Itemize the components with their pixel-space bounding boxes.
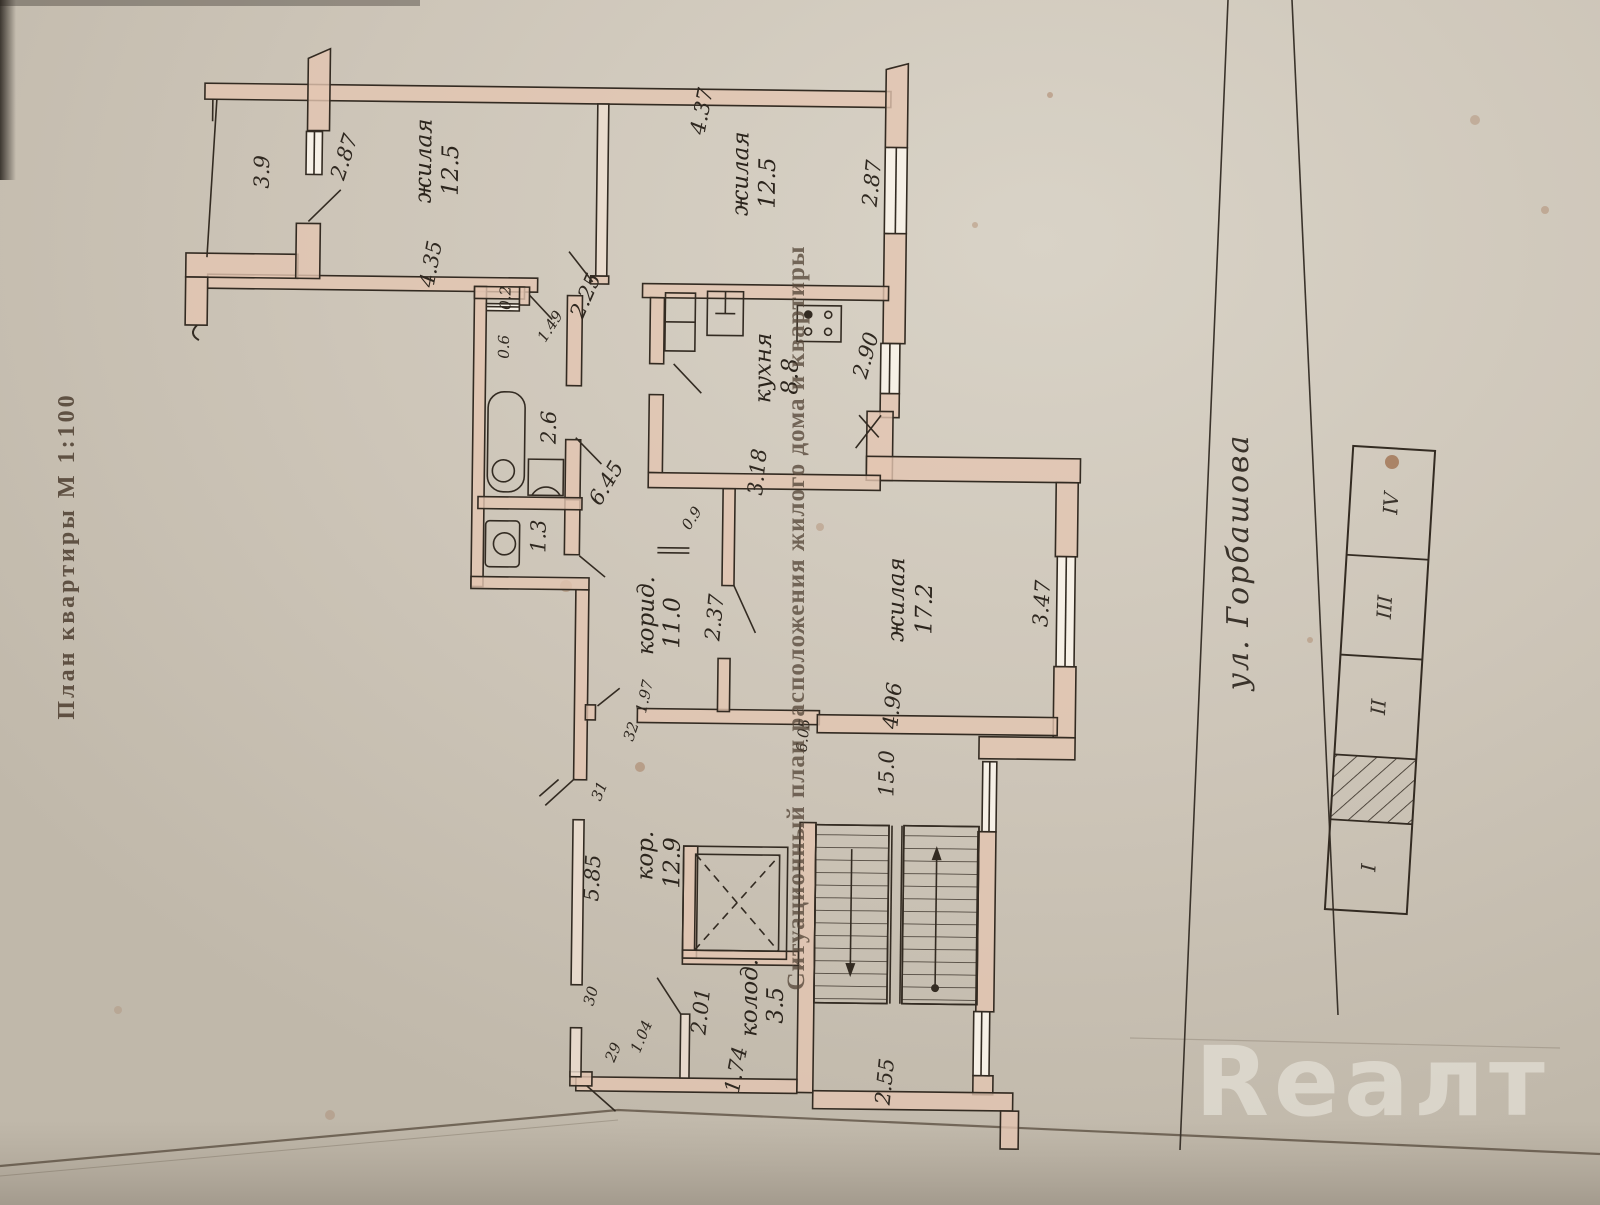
bath-area-label: 2.6: [537, 411, 561, 446]
floor-plan-canvas: ул. Горбашова IV III II I: [0, 0, 1600, 1205]
room2-name-label: жилая: [727, 131, 754, 216]
living-area-label: 17.2: [911, 583, 938, 635]
kitchen-name-label: кухня: [750, 333, 777, 404]
window-right-2.87: [884, 147, 907, 233]
dim-02: 0.2: [496, 286, 514, 310]
window-stairs-upper: [982, 762, 997, 832]
storage-area-label: 3.5: [763, 987, 789, 1024]
dim-496: 4.96: [878, 681, 907, 731]
dim-318: 3.18: [743, 447, 772, 496]
legend-cell-iii: III: [1372, 593, 1398, 620]
dim-287-right: 2.87: [858, 158, 887, 209]
window-balcony-2.87: [306, 131, 323, 174]
window-right-2.90: [880, 343, 900, 393]
dim-255: 2.55: [871, 1057, 900, 1107]
dim-201: 2.01: [686, 987, 715, 1037]
room2-area-label: 12.5: [755, 157, 782, 209]
hall-area-label: 12.9: [659, 837, 686, 889]
room1-area-label: 12.5: [438, 144, 465, 196]
dim-237: 2.37: [700, 592, 729, 643]
dim-585: 5.85: [579, 854, 605, 902]
street-name-label: ул. Горбашова: [1221, 434, 1256, 693]
scanned-floor-plan-photo: ул. Горбашова IV III II I: [0, 0, 1600, 1205]
legend-hatched-cell: [1330, 754, 1416, 824]
window-living-3.47: [1056, 557, 1075, 667]
window-stairs-lower: [973, 1012, 990, 1076]
corridor-name-label: корид.: [633, 576, 660, 655]
legend-cell-iv: IV: [1378, 489, 1404, 516]
dim-347: 3.47: [1028, 579, 1055, 628]
balcony-area-label: 3.9: [250, 155, 274, 189]
plan-title-stamp: План квартиры М 1:100: [54, 392, 80, 719]
living-name-label: жилая: [883, 557, 910, 642]
room1-name-label: жилая: [411, 118, 438, 203]
realt-watermark: Reaлт: [1195, 1026, 1550, 1138]
legend-cell-ii: II: [1366, 697, 1391, 716]
dim-06: 0.6: [495, 334, 513, 359]
stair-hall-area-label: 15.0: [874, 750, 899, 797]
storage-name-label: колод.: [736, 959, 763, 1037]
situational-plan-stamp: Ситуационный план расположения жилого до…: [783, 246, 810, 991]
corridor-area-label: 11.0: [659, 597, 686, 649]
hall-name-label: кор.: [632, 831, 659, 881]
wc-area-label: 1.3: [526, 519, 550, 553]
